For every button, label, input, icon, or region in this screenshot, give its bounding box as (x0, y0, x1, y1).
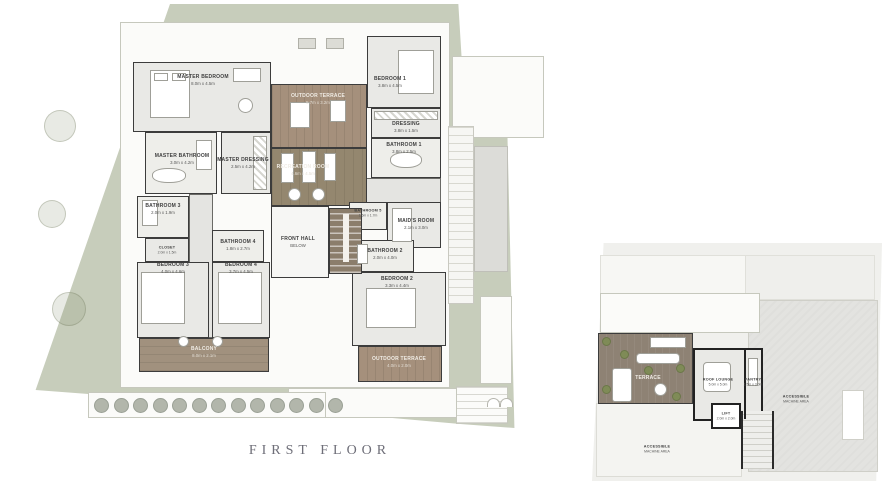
room-dims: 3.8m x 4.5m (374, 82, 406, 88)
room-label-bathroom-4: BATHROOM 4 1.8m x 2.7m (220, 239, 255, 251)
room-label-front-hall: FRONT HALL BELOW (281, 236, 315, 248)
plant-icon (620, 350, 629, 359)
bed-icon (366, 288, 416, 328)
tree-icon (38, 200, 66, 228)
room-label-closet: CLOSET 2.0m x 1.5m (158, 245, 177, 254)
room-label-master-dressing: MASTER DRESSING 2.5m x 4.2m (217, 157, 269, 169)
shrub-icon (328, 398, 343, 413)
room-label-maids-room: MAID'S ROOM 2.1m x 3.0m (398, 218, 434, 230)
shrub-row (88, 392, 326, 418)
roof-band-top-left (600, 255, 750, 295)
room-name: BATHROOM 2 (367, 248, 402, 255)
rooftop-unit (326, 38, 344, 49)
room-name: BEDROOM 2 (381, 276, 413, 283)
room-name: BEDROOM 4 (225, 262, 257, 269)
room-dims: 1.8m x 2.7m (220, 245, 255, 251)
room-name: BALCONY (191, 346, 217, 353)
room-label-bedroom-2: BEDROOM 2 3.3m x 4.4m (381, 276, 413, 288)
tree-icon (52, 292, 86, 326)
roof-band-mid (600, 293, 760, 333)
bathtub-icon (390, 152, 422, 168)
toilet-icon (357, 244, 368, 264)
room-dims: 3.0m x 4.2m (155, 159, 210, 165)
room-name: MASTER DRESSING (217, 157, 269, 164)
room-name: BATHROOM 1 (386, 142, 421, 149)
room-name: BATHROOM 4 (220, 239, 255, 246)
room-dims: 8.0m x 4.5m (177, 80, 228, 86)
side-roof-panel (474, 146, 508, 272)
room-name: BEDROOM 3 (157, 262, 189, 269)
room-label-bathroom-5: BATHROOM 5 1.6m x 1.7m (354, 208, 381, 217)
room-dims: 3.7m x 4.5m (225, 268, 257, 274)
bathtub-icon (152, 168, 186, 183)
shrub-icon (192, 398, 207, 413)
shrub-icon (172, 398, 187, 413)
area-name-2: MACHINE AREA (783, 399, 809, 403)
staircase-landing (343, 214, 349, 262)
wardrobe-icon (374, 111, 438, 120)
label-machine-area-right: ACCESSIBLE MACHINE AREA (783, 394, 809, 403)
room-dims: 3.8m x 2.5m (386, 148, 421, 154)
room-label-roof-terrace: TERRACE (635, 375, 661, 382)
room-label-bedroom-1: BEDROOM 1 3.8m x 4.5m (374, 76, 406, 88)
room-name: MASTER BEDROOM (177, 74, 228, 81)
room-label-bathroom-2: BATHROOM 2 2.0m x 4.0m (367, 248, 402, 260)
room-dims: 2.0m x 1.9m (145, 209, 180, 215)
room-dims: 2.5m x 4.2m (217, 163, 269, 169)
label-machine-area-bottom: ACCESSIBLE MACHINE AREA (644, 444, 670, 453)
room-dims: 1.6m x 1.7m (354, 213, 381, 217)
gym-ball-icon (288, 188, 301, 201)
plant-icon (676, 364, 685, 373)
room-label-balcony: BALCONY 8.0m x 2.1m (191, 346, 217, 358)
room-label-roof-lounge: ROOF LOUNGE 5.0m x 5.0m (703, 377, 733, 386)
gym-ball-icon (312, 188, 325, 201)
room-dims: 8.0m x 2.1m (191, 352, 217, 358)
shrub-icon (94, 398, 109, 413)
room-label-bedroom-4: BEDROOM 4 3.7m x 4.5m (225, 262, 257, 274)
room-name: BATHROOM 3 (145, 203, 180, 210)
room-label-pantry: PANTRY 1.5m x 3.0m (744, 377, 763, 386)
room-name: MAID'S ROOM (398, 218, 434, 225)
entry-arch-icon (500, 398, 513, 407)
entry-arch-icon (487, 398, 500, 407)
floor-plan-sheet: MASTER BEDROOM 8.0m x 4.5m MASTER BATHRO… (0, 0, 890, 500)
side-planter (480, 296, 512, 384)
room-dims: 2.0m x 2.0m (717, 416, 736, 420)
roof-cutout (842, 390, 864, 440)
area-name-2: MACHINE AREA (644, 449, 670, 453)
sofa-icon (233, 68, 261, 82)
shrub-icon (270, 398, 285, 413)
bar-counter-icon (650, 337, 686, 348)
shrub-icon (114, 398, 129, 413)
room-label-bathroom-3: BATHROOM 3 2.0m x 1.9m (145, 203, 180, 215)
plant-icon (602, 337, 611, 346)
roof-staircase (741, 411, 774, 469)
lounge-chair-icon (290, 102, 310, 128)
room-dims: 5.0m x 5.0m (703, 382, 733, 386)
balcony-chair-icon (178, 336, 189, 347)
room-dims: BELOW (281, 242, 315, 248)
room-dims: 3.8m x 1.5m (392, 127, 420, 133)
bed-icon (141, 272, 185, 324)
room-dims: 1.5m x 3.0m (744, 382, 763, 386)
room-label-recreation: RECREATION ROOM 4.6m x 4.5m (277, 164, 330, 176)
room-name: OUTDOOR TERRACE (372, 356, 426, 363)
plant-icon (644, 366, 653, 375)
shrub-icon (289, 398, 304, 413)
room-label-master-bathroom: MASTER BATHROOM 3.0m x 4.2m (155, 153, 210, 165)
room-name: OUTDOOR TERRACE (291, 93, 345, 100)
room-dims: 3.3m x 4.4m (381, 282, 413, 288)
room-dims: 5.7m x 3.2m (291, 99, 345, 105)
dining-table-icon (612, 368, 632, 402)
shrub-icon (211, 398, 226, 413)
room-name: FRONT HALL (281, 236, 315, 243)
shrub-icon (309, 398, 324, 413)
room-dims: 4.6m x 4.5m (277, 170, 330, 176)
chair-icon (238, 98, 253, 113)
room-label-lift: LIFT 2.0m x 2.0m (717, 411, 736, 420)
room-name: RECREATION ROOM (277, 164, 330, 171)
room-dims: 2.0m x 4.0m (367, 254, 402, 260)
side-table-icon (654, 383, 667, 396)
room-dims: 2.1m x 3.0m (398, 224, 434, 230)
room-dims: 4.0m x 2.0m (372, 362, 426, 368)
shrub-icon (231, 398, 246, 413)
room-label-outdoor-terrace-top: OUTDOOR TERRACE 5.7m x 3.2m (291, 93, 345, 105)
pillow-icon (154, 73, 168, 81)
bed-icon (218, 272, 262, 324)
room-label-outdoor-terrace-bottom: OUTDOOR TERRACE 4.0m x 2.0m (372, 356, 426, 368)
room-name: DRESSING (392, 121, 420, 128)
room-label-master-bedroom: MASTER BEDROOM 8.0m x 4.5m (177, 74, 228, 86)
tree-icon (44, 110, 76, 142)
room-dims: 4.0m x 4.6m (157, 268, 189, 274)
pergola-louvres (448, 126, 474, 304)
plant-icon (602, 385, 611, 394)
room-dims: 2.0m x 1.5m (158, 250, 177, 254)
shrub-icon (250, 398, 265, 413)
rooftop-unit (298, 38, 316, 49)
shrub-icon (133, 398, 148, 413)
room-name: MASTER BATHROOM (155, 153, 210, 160)
roof-band-top-right (745, 255, 875, 300)
room-name: BEDROOM 1 (374, 76, 406, 83)
room-name: TERRACE (635, 375, 661, 382)
room-label-bedroom-3: BEDROOM 3 4.0m x 4.6m (157, 262, 189, 274)
plant-icon (672, 392, 681, 401)
shrub-icon (153, 398, 168, 413)
plan-caption: FIRST FLOOR (249, 443, 391, 459)
room-label-bathroom-1: BATHROOM 1 3.8m x 2.5m (386, 142, 421, 154)
room-label-dressing: DRESSING 3.8m x 1.5m (392, 121, 420, 133)
outdoor-sofa-icon (636, 353, 680, 364)
